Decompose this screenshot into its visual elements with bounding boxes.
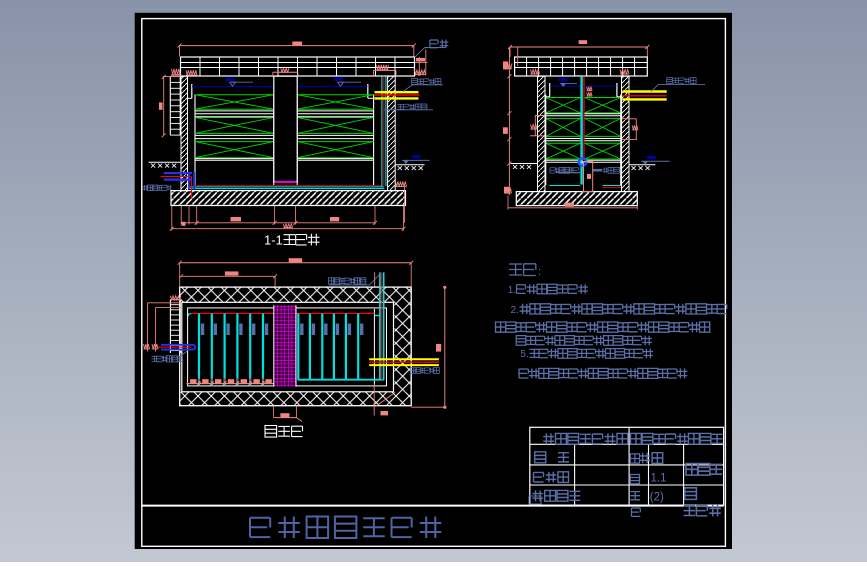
svg-text:2.: 2. bbox=[511, 305, 519, 316]
svg-text:(2): (2) bbox=[650, 492, 664, 504]
svg-text:1-1: 1-1 bbox=[264, 233, 283, 248]
svg-text::: : bbox=[538, 266, 541, 278]
svg-text:1.: 1. bbox=[508, 285, 516, 296]
svg-text:1.1: 1.1 bbox=[651, 473, 667, 485]
svg-text:5.: 5. bbox=[520, 349, 528, 360]
